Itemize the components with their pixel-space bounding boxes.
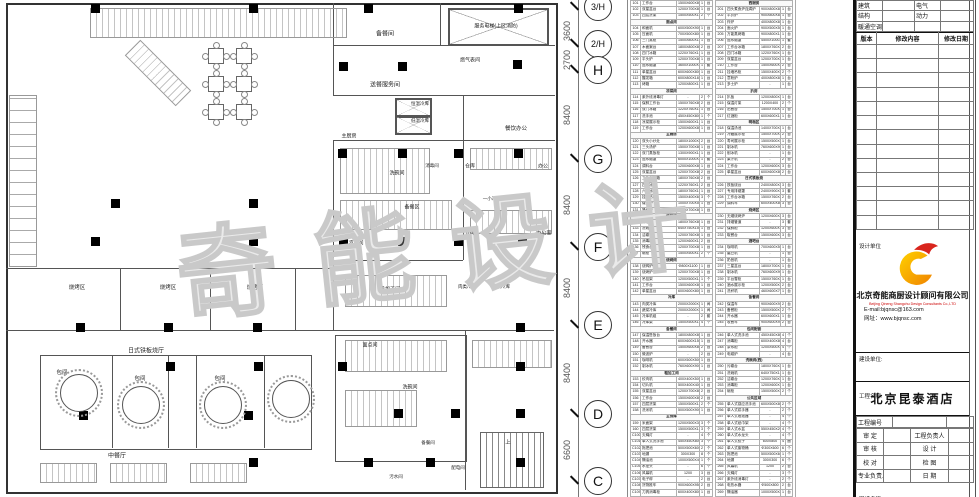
chair [251,109,258,116]
revision-cell [877,45,939,59]
revision-cell [877,116,939,130]
structural-column [454,237,463,246]
chair [251,81,258,88]
revision-col-content: 修改内容 [877,33,939,45]
approval-cell [949,469,974,483]
approval-row: 校 对检 图 [857,456,974,470]
grid-dimension: 8400 [562,273,572,303]
kitchen-equipment [345,340,447,372]
approval-row: 专业负责人日 期 [857,469,974,483]
grid-dimension: 8400 [562,358,572,388]
banquet-round-table [60,374,98,412]
discipline-cell [883,11,915,21]
dining-table [236,76,252,92]
floor-plan: 奇能设计 备餐间服务电梯(上区消防)燃气表间送餐服务间餐饮办公恒温冷库低温冷库主… [0,0,560,497]
structural-column [514,4,523,13]
discipline-cell [941,11,974,21]
booth-seating [9,95,37,267]
revision-cell [939,59,974,73]
banquet-round-table [122,386,160,424]
chair [241,91,248,98]
revision-cell [877,101,939,115]
approval-cell: 校 对 [857,456,884,470]
revision-cell [939,116,974,130]
buffet-counter [40,463,97,483]
approval-cell: 专业负责人 [857,469,884,483]
kitchen-equipment [472,340,552,368]
approval-cell: 日 期 [911,469,949,483]
grid-bubble: 3/H [584,0,612,21]
room-label: 一小冷库一 [483,196,506,202]
revision-table: 版本 修改内容 修改日期 [856,32,974,230]
chair [202,109,209,116]
client-block: 建设单位: [856,353,969,382]
structural-column [398,62,407,71]
revision-col-version: 版本 [857,33,877,45]
chair [213,70,220,77]
revision-cell [857,201,877,215]
wall [333,95,555,96]
revision-cell [939,101,974,115]
revision-empty-row [857,116,974,130]
room-label: 餐饮办公 [505,124,527,132]
structural-column [166,362,175,371]
grid-dimension: 3600 [562,16,572,46]
revision-empty-row [857,201,974,215]
structural-column [249,237,258,246]
grid-bubble: G [584,145,612,173]
approval-cell: 审 核 [857,442,884,456]
room-label: 主厨房 [341,133,356,140]
revision-cell [877,87,939,101]
grid-bubble: C [584,467,612,495]
room-label: 烧烤区 [160,283,177,291]
approval-row: 审 定工程负责人 [857,429,974,443]
project-number-row: 工程编号 [856,416,974,428]
revision-cell [939,201,974,215]
approval-cell: 设 计 [911,442,949,456]
wall [6,268,333,269]
discipline-cell: 电气 [915,1,941,11]
revision-cell [939,144,974,158]
revision-empty-row [857,144,974,158]
room-label: 备餐区 [404,204,419,211]
revision-cell [877,144,939,158]
revision-cell [877,73,939,87]
equipment-row: C109刀具消毒柜600X400X8001台 [631,489,713,496]
revision-empty-row [857,130,974,144]
wall [440,3,441,45]
grid-axis-column: 3/H2/HHGFEDC3600270084008400840084006600 [560,0,628,497]
discipline-cell [883,21,915,31]
wall [333,140,555,141]
dining-table [236,104,252,120]
title-block: 建筑电气结构动力暖通空调 版本 修改内容 修改日期 设计单位 [853,0,970,497]
grid-bubble: D [584,400,612,428]
chair [241,70,248,77]
room-label: 洗碗间 [389,170,404,177]
revision-cell [857,215,877,229]
chair [223,53,230,60]
structural-column [244,411,253,420]
structural-column [516,362,525,371]
client-label: 建设单位: [859,355,883,363]
revision-col-date: 修改日期 [939,33,974,45]
wall [6,330,554,331]
room-label: 烧烤区 [247,283,264,291]
structural-column [91,4,100,13]
room-label: 凉菜间 [348,240,363,247]
chair [251,53,258,60]
structural-column [254,362,263,371]
frame-line [627,0,628,497]
wall [196,355,197,448]
revision-cell [857,158,877,172]
wall [264,355,265,448]
revision-cell [939,45,974,59]
grid-dimension: 8400 [562,190,572,220]
revision-cell [857,87,877,101]
revision-cell [939,215,974,229]
room-label: 烧烤区 [69,283,86,291]
dining-table [236,48,252,64]
dining-table [208,76,224,92]
room-label: 消毒间 [425,163,439,169]
buffet-counter [110,463,167,483]
room-label: 包间 [214,374,225,382]
revision-cell [877,172,939,186]
chair [230,81,237,88]
wall [210,268,211,330]
structural-column [249,199,258,208]
revision-cell [857,101,877,115]
chair [213,42,220,49]
discipline-row: 结构动力 [857,11,974,21]
structural-column [518,237,527,246]
chair [241,42,248,49]
discipline-cell [883,1,915,11]
structural-column [249,4,258,13]
room-label: 服务电梯(上区消防) [474,23,517,30]
chair [241,98,248,105]
revision-cell [939,172,974,186]
room-label: 蔬菜冷库 [492,284,510,290]
approval-cell [884,429,911,443]
revision-cell [857,73,877,87]
project-name-block: 工程名称: 北京昆泰酒店 [856,390,969,416]
chair [230,109,237,116]
room-label: 面点间 [362,342,377,349]
revision-empty-row [857,45,974,59]
structural-column [451,409,460,418]
stairs [480,432,544,488]
chair [230,53,237,60]
room-label: 热加工间 [380,286,400,293]
frame-line [795,0,796,497]
room-label: 仓库 [465,230,475,237]
revision-cell [939,130,974,144]
room-label: 备餐间 [421,440,435,446]
room-label: 仓库 [465,163,475,170]
approval-cell [884,456,911,470]
company-name-cn: 北京奇能商厨设计顾问有限公司 [856,290,969,301]
discipline-row: 建筑电气 [857,1,974,11]
discipline-cell: 动力 [915,11,941,21]
chair [213,91,220,98]
revision-cell [857,144,877,158]
wall [333,140,334,330]
revision-cell [877,130,939,144]
approval-cell: 审 定 [857,429,884,443]
grid-bubble: E [584,311,612,339]
chair [213,119,220,126]
approval-cell [949,429,974,443]
revision-empty-row [857,101,974,115]
revision-cell [877,59,939,73]
revision-cell [857,116,877,130]
chair [241,63,248,70]
approval-cell [884,469,911,483]
grid-dimension: 2700 [562,45,572,75]
revision-cell [877,187,939,201]
revision-cell [857,59,877,73]
wall [463,95,464,260]
project-name-label: 工程名称: [859,392,883,400]
discipline-cell [915,21,941,31]
room-label: 日式铁板烧厅 [128,346,164,355]
room-label: 备餐间 [376,29,394,38]
revision-cell [939,87,974,101]
structural-column [339,237,348,246]
grid-bubble: F [584,233,612,261]
structural-column [394,409,403,418]
structural-column [338,362,347,371]
structural-column [111,199,120,208]
bar-counter [90,8,347,38]
structural-column [364,4,373,13]
grid-bubble: H [584,56,612,84]
structural-column [398,237,407,246]
project-number-label: 工程编号 [857,417,893,428]
equipment-row: 269隔油器1000X500X4001台 [716,489,793,496]
approval-table: 审 定工程负责人审 核设 计校 对检 图专业负责人日 期 [856,428,974,483]
approval-cell [949,442,974,456]
room-label: 上 [505,438,511,446]
chair [223,109,230,116]
revision-cell [939,158,974,172]
structural-column [79,411,88,420]
structural-column [339,62,348,71]
room-label: 包间 [134,374,145,382]
room-label: 恒温冷库 [411,101,429,107]
discipline-cell: 建筑 [857,1,883,11]
chair [202,81,209,88]
structural-column [516,409,525,418]
room-label: 燃气表间 [460,57,480,64]
approval-cell: 工程负责人 [911,429,949,443]
room-label: 中餐厅 [108,451,126,460]
project-number-extra [947,417,974,428]
company-website: 网址：www.bjqnsc.com [864,314,969,322]
revision-empty-row [857,172,974,186]
discipline-cell: 结构 [857,11,883,21]
wall [112,355,113,448]
structural-column [91,237,100,246]
structural-column [76,323,85,332]
discipline-table: 建筑电气结构动力暖通空调 [856,0,974,32]
company-email: E-mail:bjqnsc@163.com [864,307,969,313]
chair [213,63,220,70]
revision-empty-row [857,215,974,229]
structural-column [513,60,522,69]
room-label: 污水间 [389,474,403,480]
revision-empty-row [857,59,974,73]
buffet-counter [190,463,247,483]
chair [202,53,209,60]
structural-column [426,458,435,467]
room-label: 低温冷库 [411,118,429,124]
room-label: 配电间 [451,465,465,471]
structural-column [454,149,463,158]
banquet-round-table [272,380,310,418]
project-number-value [893,417,947,428]
chair [213,98,220,105]
kitchen-equipment [340,200,452,230]
structural-column [398,149,407,158]
approval-cell [949,456,974,470]
revision-cell [877,158,939,172]
discipline-cell [941,21,974,31]
revision-cell [939,187,974,201]
room-label: 洗碗间 [402,384,417,391]
approval-cell: 检 图 [911,456,949,470]
revision-empty-row [857,158,974,172]
structural-column [364,458,373,467]
room-label: 办公 [538,163,548,170]
structural-column [164,323,173,332]
room-label: 肉类冷库 [458,284,476,290]
drawing-sheet: 奇能设计 备餐间服务电梯(上区消防)燃气表间送餐服务间餐饮办公恒温冷库低温冷库主… [0,0,979,497]
chair [241,119,248,126]
wall [295,268,296,330]
equipment-schedule-right: 西厨房201四头煮食炉连焗炉900X800X8501台202平扒炉900X800… [715,0,793,497]
kitchen-equipment [345,390,417,427]
discipline-row: 暖通空调 [857,21,974,31]
wall [333,260,463,261]
sheet-border [975,0,976,497]
approval-cell [884,442,911,456]
revision-empty-row [857,73,974,87]
grid-dimension: 6600 [562,435,572,465]
structural-column [516,458,525,467]
revision-cell [857,187,877,201]
structural-column [514,149,523,158]
room-label: 包间 [56,368,67,376]
grid-dimension: 8400 [562,100,572,130]
revision-cell [857,130,877,144]
approval-row: 审 核设 计 [857,442,974,456]
company-name-en: Beijing Qineng Shangchu Design Consultan… [856,302,969,306]
grid-bubble: 2/H [584,30,612,58]
equipment-schedule-left: 101工作台1500X600X8001台102双星盆台1200X700X8001… [630,0,713,497]
structural-column [253,323,262,332]
discipline-cell [941,1,974,11]
revision-cell [877,201,939,215]
room-label: 办公室 [536,230,551,237]
revision-empty-row [857,187,974,201]
revision-cell [857,45,877,59]
banquet-round-table [204,386,242,424]
revision-cell [877,215,939,229]
room-label: 送餐服务间 [370,80,400,89]
revision-header-row: 版本 修改内容 修改日期 [857,33,974,45]
design-unit-label: 设计单位 [859,242,881,250]
revision-empty-row [857,87,974,101]
dining-table [208,104,224,120]
dining-table [208,48,224,64]
sheet-name-block: 图纸名称: 一层中餐、西餐厨房 [856,493,969,497]
structural-column [516,323,525,332]
revision-cell [939,73,974,87]
chair [223,81,230,88]
structural-column [249,458,258,467]
kitchen-equipment [340,148,430,194]
wall [120,268,121,330]
revision-cell [857,172,877,186]
design-unit-block: 设计单位 北京奇能商厨设计顾问有限公司 Beijing Qineng Sha [856,240,969,353]
structural-column [338,149,347,158]
discipline-cell: 暖通空调 [857,21,883,31]
